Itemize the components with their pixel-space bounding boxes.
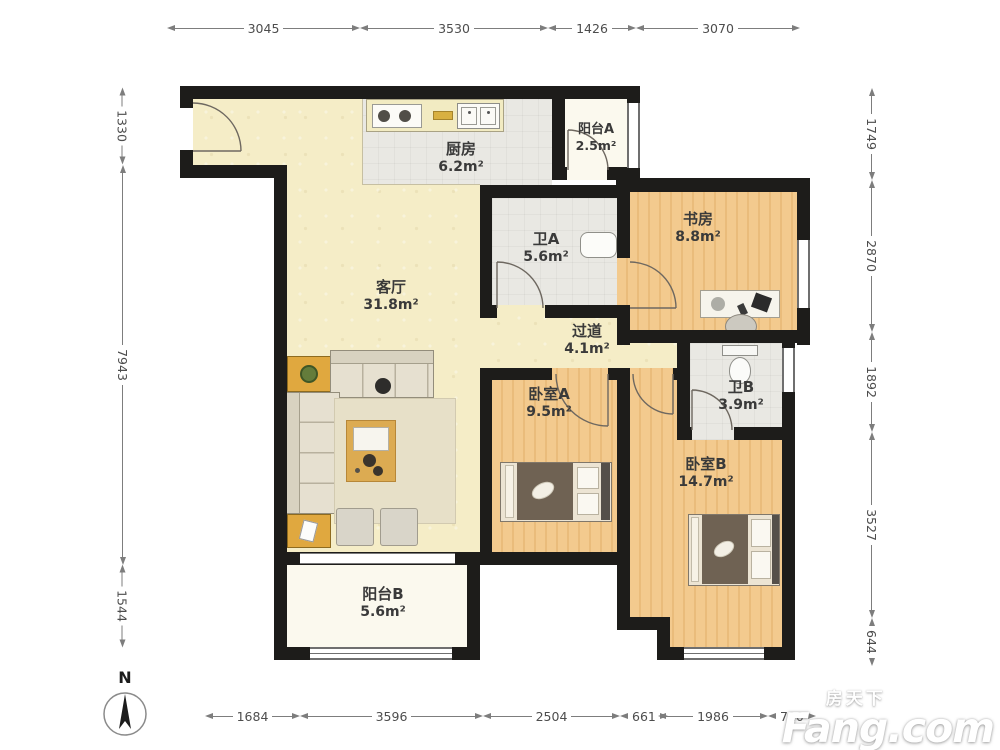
wall [480,305,497,318]
dim-line [872,276,873,324]
room-area: 2.5m² [536,138,656,154]
ottoman [380,508,418,546]
room-name: 厨房 [401,140,521,159]
sink-basin [480,107,496,125]
dim-line [644,28,698,29]
dim-line [368,28,434,29]
side-lamp-icon [375,378,391,394]
dim-value: 2870 [865,236,880,276]
bed [688,514,780,586]
dim-bottom-2: 3596 [300,708,483,724]
dim-line [872,188,873,236]
dim-line [213,716,233,717]
room-label-bath-b: 卫B 3.9m² [681,378,801,414]
dim-value: 1749 [865,114,880,154]
kitchen-edge-line [362,184,480,185]
dim-value: 3527 [865,505,880,545]
dim-line [872,402,873,424]
sink-basin [461,107,477,125]
wall [552,167,567,180]
floor-plan: 客厅 31.8m² 厨房 6.2m² 阳台A 2.5m² 书房 8.8m² 卫A… [0,0,1000,750]
room-area: 5.6m² [486,249,606,267]
dim-right-3: 1892 [864,332,880,432]
wall [617,368,630,630]
dim-line [872,96,873,114]
dim-top-1: 3045 [167,20,360,36]
dim-line [556,28,572,29]
dim-top-4: 3070 [636,20,800,36]
dim-line [122,146,123,157]
room-name: 卫A [486,230,606,249]
bed-foot [691,517,699,582]
room-area: 3.9m² [681,397,801,415]
tap-icon [468,111,471,114]
dim-top-2: 3530 [360,20,548,36]
dim-value: 1892 [865,362,880,402]
dim-line [123,173,124,345]
dim-line [612,28,628,29]
room-area: 4.1m² [527,341,647,359]
sofa-sectional [286,392,340,514]
room-name: 过道 [527,322,647,341]
headboard [601,463,610,520]
dim-line [411,716,475,717]
dim-left-1: 1330 [115,88,131,165]
room-name: 客厅 [331,278,451,297]
room-name: 卧室A [489,385,609,404]
dim-line [122,626,123,640]
wall [617,192,630,258]
room-area: 31.8m² [331,297,451,315]
dim-value: 3045 [244,21,284,36]
bed-foot [505,465,514,518]
dim-right-5: 644 [864,618,880,650]
dim-top-3: 1426 [548,20,636,36]
dim-line [872,545,873,610]
tea-tray [353,427,389,451]
room-label-balcony-a: 阳台A 2.5m² [536,122,656,154]
dim-bottom-1: 1684 [205,708,300,724]
wall [677,427,692,440]
wall [545,305,630,318]
sliding-door [300,553,455,564]
dim-value: 644 [865,626,880,658]
wall [480,185,630,198]
dim-value: 1544 [115,586,130,626]
room-area: 14.7m² [646,474,766,492]
wall [616,178,810,192]
laptop-icon [751,293,772,313]
dim-left-2: 7943 [115,165,131,565]
room-label-balcony-b: 阳台B 5.6m² [323,585,443,621]
wall [180,165,287,178]
dim-bottom-3: 2504 [483,708,620,724]
wall [480,552,630,565]
dim-left-3: 1544 [115,565,131,648]
teapot-icon [363,454,376,467]
watermark-en: Fang.com [782,709,994,748]
room-label-bath-a: 卫A 5.6m² [486,230,606,266]
dim-value: 661 [628,709,660,724]
dim-line [122,96,123,107]
dim-value: 1426 [572,21,612,36]
room-name: 卧室B [646,455,766,474]
room-label-corridor: 过道 4.1m² [527,322,647,358]
window [684,647,764,660]
dim-value: 3596 [372,709,412,724]
wall [180,86,640,99]
room-label-bedroom-a: 卧室A 9.5m² [489,385,609,421]
room-area: 9.5m² [489,404,609,422]
dim-line [122,573,123,587]
dim-bottom-4: 661 [620,708,658,724]
stove [372,104,422,128]
window [310,647,452,660]
dim-line [872,154,873,172]
window [797,240,810,308]
plant-icon [300,365,318,383]
dim-value: 1684 [233,709,273,724]
bed [500,462,612,522]
dim-value: 3530 [434,21,474,36]
dim-value: 1986 [693,709,733,724]
dim-value: 1330 [115,106,130,146]
coffee-table [346,420,396,482]
sofa-back [287,393,300,513]
dim-bottom-5: 1986 [658,708,768,724]
ottoman [336,508,374,546]
room-area: 8.8m² [638,229,758,247]
room-label-study: 书房 8.8m² [638,210,758,246]
dim-line [283,28,352,29]
dim-line [872,340,873,362]
room-label-bedroom-b: 卧室B 14.7m² [646,455,766,491]
plant-icon [711,297,725,311]
burner-icon [378,110,390,122]
sofa-back [331,351,433,364]
dim-line [272,716,292,717]
headboard [772,515,779,584]
pillow [751,519,771,547]
dim-right-1: 1749 [864,88,880,180]
teacup-icon [355,468,360,473]
wall [274,165,287,660]
toilet-tank [722,345,758,356]
dim-line [738,28,792,29]
tap-icon [487,111,490,114]
double-sink [457,103,500,129]
room-area: 6.2m² [401,159,521,177]
exterior-notch [617,630,657,660]
dim-line [175,28,244,29]
room-label-living: 客厅 31.8m² [331,278,451,314]
counter-item [433,111,453,120]
room-name: 阳台A [536,122,656,138]
wall [467,552,480,660]
dim-right-2: 2870 [864,180,880,332]
dim-value: 2504 [532,709,572,724]
dim-line [872,440,873,505]
dim-line [123,385,124,557]
dim-value: 3070 [698,21,738,36]
north-arrow-icon [102,688,148,738]
side-table [287,356,331,392]
room-name: 阳台B [323,585,443,604]
room-name: 书房 [638,210,758,229]
dim-line [474,28,540,29]
dim-line [491,716,532,717]
pillow [751,551,771,579]
dim-line [733,716,760,717]
burner-icon [399,110,411,122]
pillow [577,467,599,489]
dim-line [308,716,372,717]
side-table [287,514,331,548]
dim-value: 7943 [116,345,131,385]
sofa-loveseat [330,350,434,398]
dim-line [571,716,612,717]
book-icon [299,519,318,542]
teacup-icon [373,466,383,476]
compass: N [102,668,148,742]
dim-right-4: 3527 [864,432,880,618]
floor-bedroom-b-entry [630,368,677,440]
wall [180,86,193,108]
wall [782,427,795,660]
kitchen-edge-line [362,99,363,185]
room-area: 5.6m² [323,604,443,622]
compass-label: N [102,668,148,687]
room-name: 卫B [681,378,801,397]
kitchen-counter [366,99,504,132]
watermark-fang-logo: 房天下 Fang.com [782,684,994,748]
pillow [577,493,599,515]
dim-line [666,716,693,717]
room-label-kitchen: 厨房 6.2m² [401,140,521,176]
